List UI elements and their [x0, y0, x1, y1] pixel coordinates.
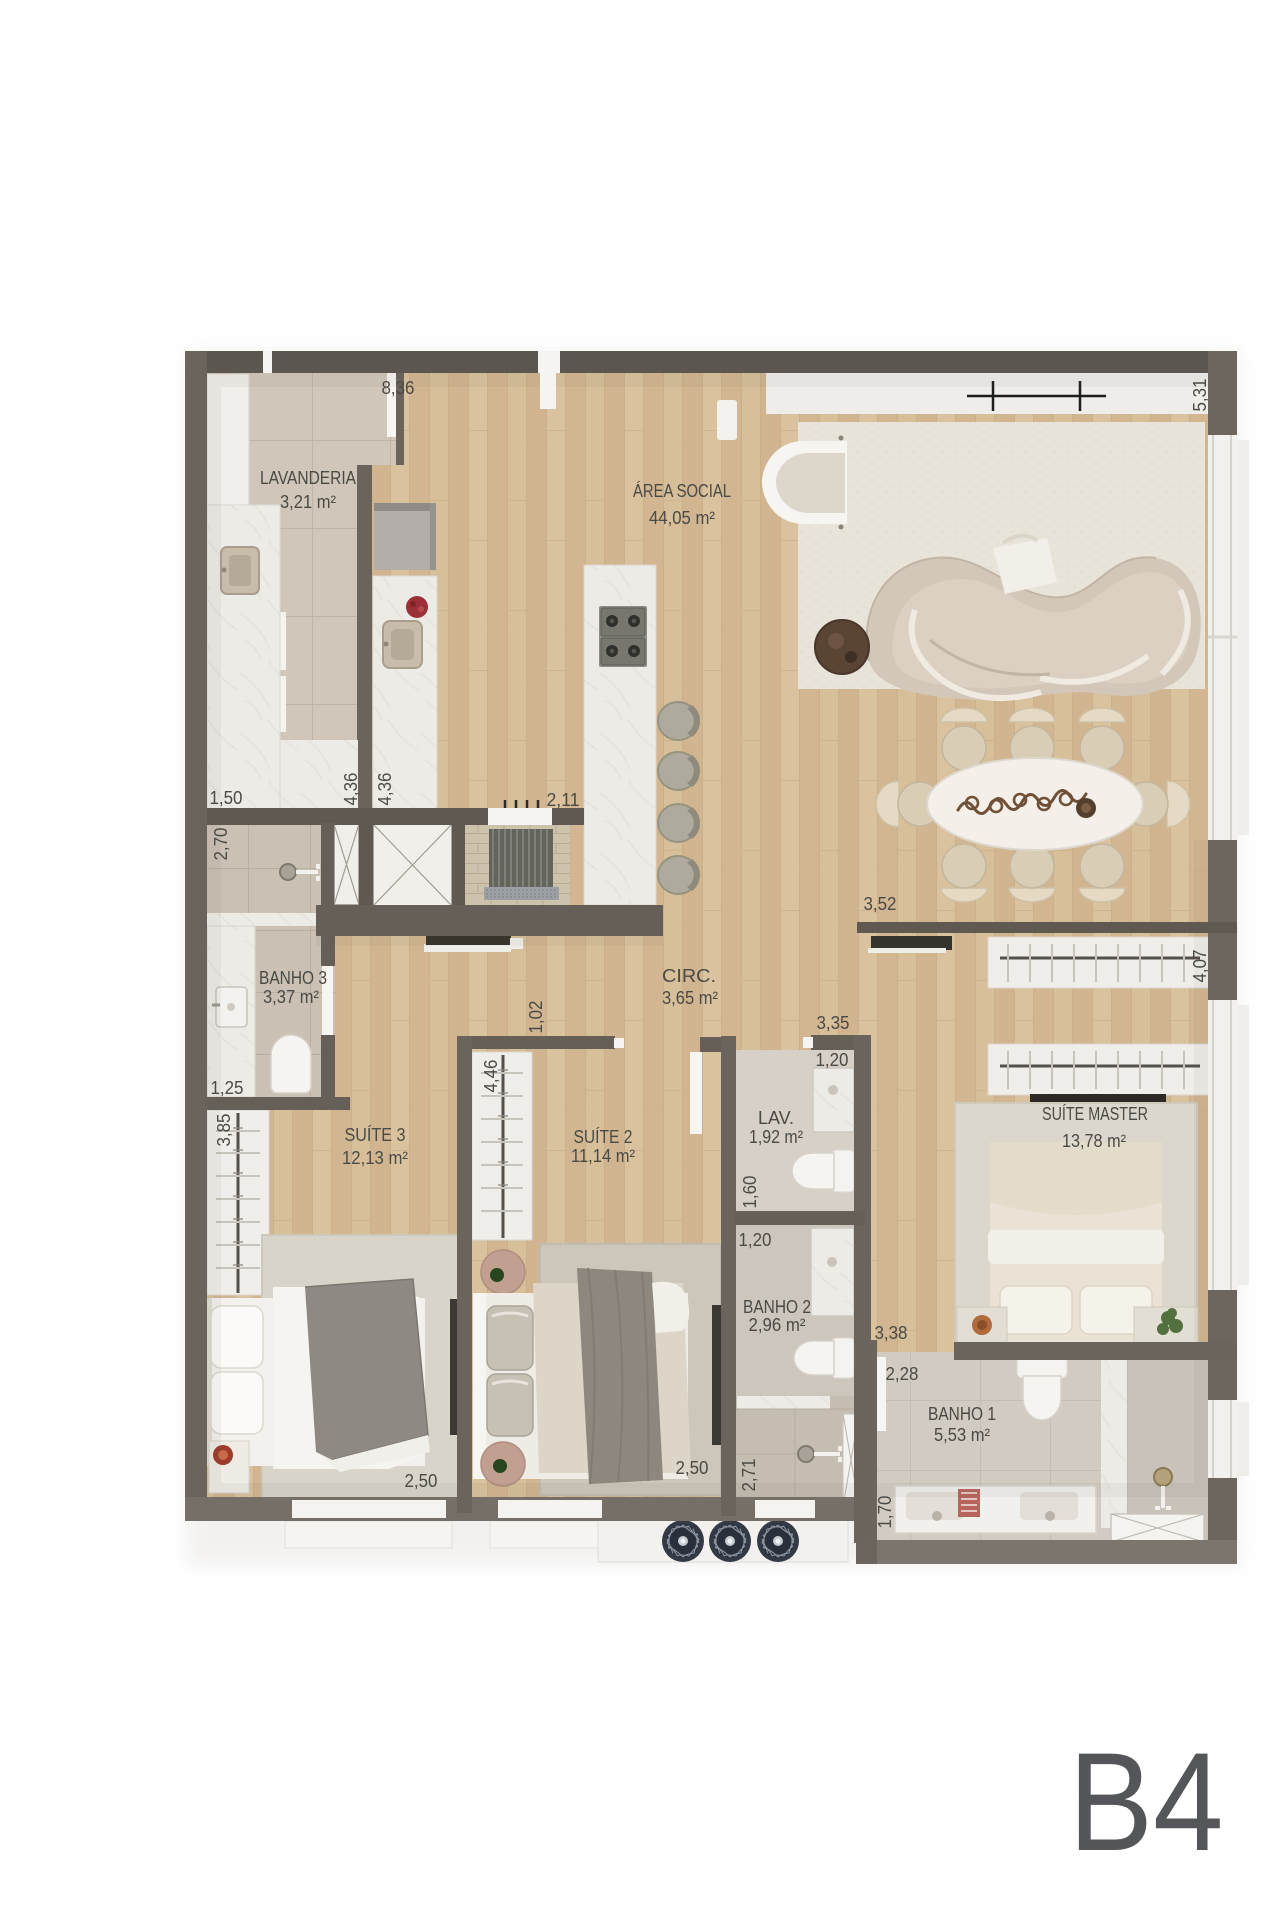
svg-text:1,70: 1,70 [875, 1496, 895, 1529]
svg-text:8,36: 8,36 [382, 378, 415, 398]
svg-text:BANHO 2: BANHO 2 [743, 1297, 811, 1317]
svg-text:CIRC.: CIRC. [662, 966, 716, 986]
svg-text:1,60: 1,60 [740, 1176, 760, 1209]
svg-text:ÁREA SOCIAL: ÁREA SOCIAL [633, 481, 731, 501]
svg-text:3,35: 3,35 [817, 1013, 850, 1033]
svg-text:44,05 m²: 44,05 m² [649, 508, 715, 528]
svg-text:2,50: 2,50 [676, 1458, 709, 1478]
svg-text:11,14 m²: 11,14 m² [571, 1146, 635, 1166]
svg-text:2,96 m²: 2,96 m² [749, 1315, 806, 1335]
svg-text:SUÍTE 2: SUÍTE 2 [574, 1127, 633, 1147]
svg-text:5,53 m²: 5,53 m² [934, 1425, 990, 1445]
svg-text:3,65 m²: 3,65 m² [662, 988, 718, 1008]
svg-text:12,13 m²: 12,13 m² [342, 1148, 408, 1168]
svg-text:1,92 m²: 1,92 m² [749, 1127, 803, 1147]
svg-text:1,20: 1,20 [816, 1050, 849, 1070]
svg-text:LAV.: LAV. [758, 1108, 794, 1128]
svg-text:BANHO 3: BANHO 3 [259, 968, 327, 988]
svg-text:4,36: 4,36 [341, 773, 361, 806]
svg-text:SUÍTE MASTER: SUÍTE MASTER [1042, 1104, 1148, 1124]
svg-text:B4: B4 [1069, 1723, 1224, 1880]
svg-text:1,25: 1,25 [211, 1078, 244, 1098]
svg-text:2,50: 2,50 [405, 1471, 438, 1491]
svg-text:13,78 m²: 13,78 m² [1062, 1131, 1126, 1151]
svg-text:4,46: 4,46 [481, 1060, 501, 1093]
svg-text:5,31: 5,31 [1190, 379, 1210, 412]
svg-text:3,21 m²: 3,21 m² [280, 492, 336, 512]
svg-text:1,50: 1,50 [210, 788, 243, 808]
svg-text:3,85: 3,85 [214, 1114, 234, 1147]
svg-text:BANHO 1: BANHO 1 [928, 1404, 996, 1424]
svg-text:4,07: 4,07 [1190, 950, 1210, 983]
svg-text:4,36: 4,36 [375, 773, 395, 806]
svg-text:1,02: 1,02 [526, 1001, 546, 1034]
svg-text:3,37 m²: 3,37 m² [263, 987, 319, 1007]
svg-text:2,71: 2,71 [739, 1459, 759, 1492]
svg-text:3,52: 3,52 [864, 894, 897, 914]
svg-text:2,28: 2,28 [886, 1364, 919, 1384]
svg-text:2,11: 2,11 [547, 790, 580, 810]
svg-text:LAVANDERIA: LAVANDERIA [260, 468, 356, 488]
svg-text:SUÍTE 3: SUÍTE 3 [345, 1125, 406, 1145]
svg-text:3,38: 3,38 [875, 1323, 908, 1343]
svg-text:1,20: 1,20 [739, 1230, 772, 1250]
svg-text:2,70: 2,70 [211, 828, 231, 861]
